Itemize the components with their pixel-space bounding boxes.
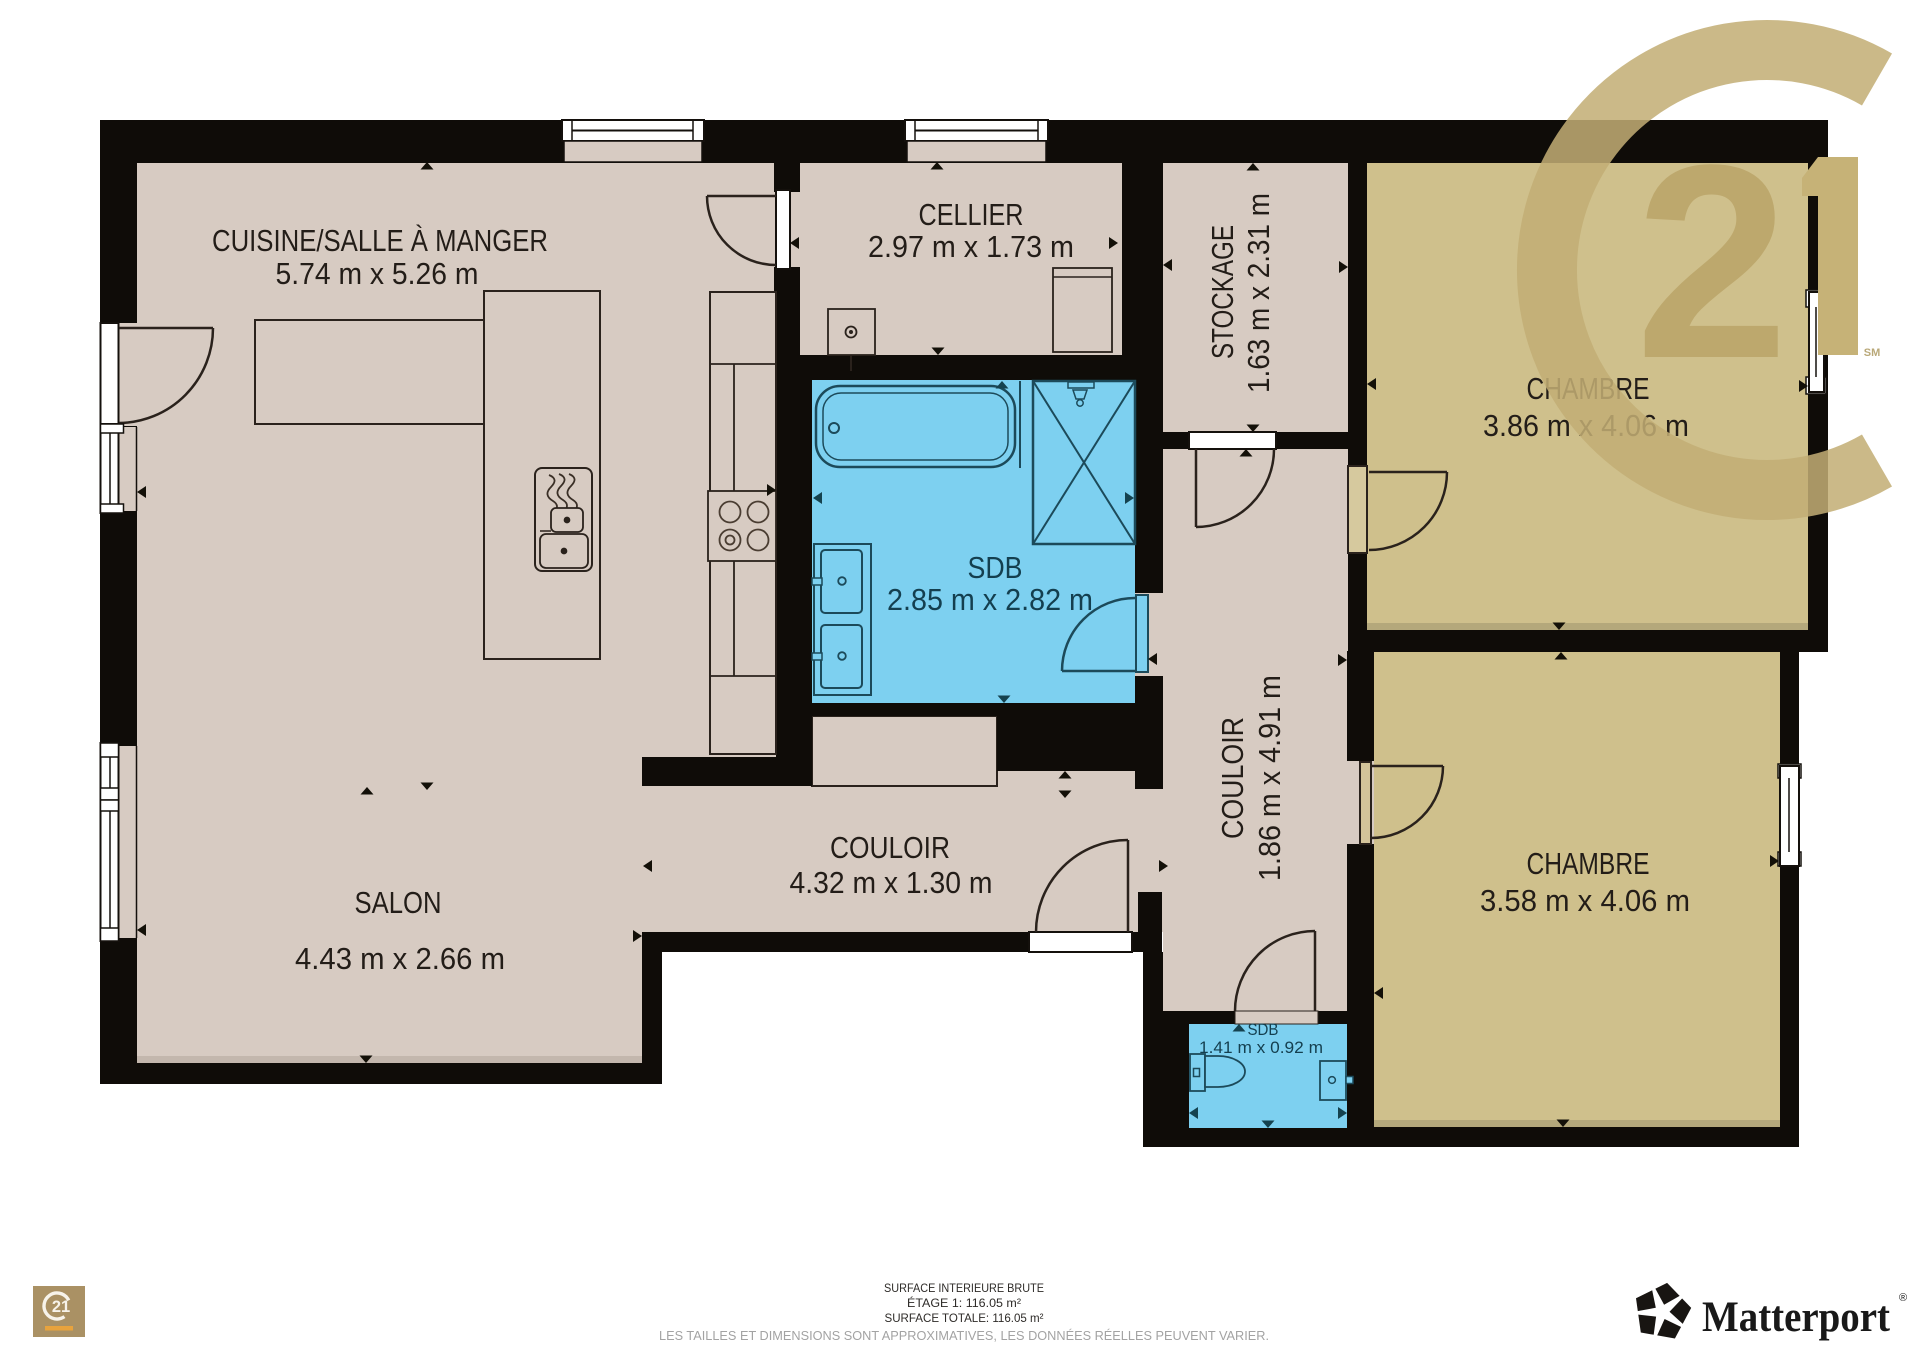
svg-text:SDB: SDB <box>1248 1020 1279 1039</box>
svg-text:STOCKAGE: STOCKAGE <box>1205 225 1240 359</box>
svg-text:ÉTAGE 1: 116.05 m²: ÉTAGE 1: 116.05 m² <box>907 1295 1021 1310</box>
svg-text:SURFACE INTERIEURE BRUTE: SURFACE INTERIEURE BRUTE <box>884 1281 1044 1295</box>
svg-text:®: ® <box>1899 1292 1907 1304</box>
svg-text:COULOIR: COULOIR <box>830 830 950 865</box>
svg-text:4.43 m x 2.66 m: 4.43 m x 2.66 m <box>295 941 505 976</box>
svg-text:CUISINE/SALLE À MANGER: CUISINE/SALLE À MANGER <box>212 223 548 258</box>
svg-text:4.32 m x 1.30 m: 4.32 m x 1.30 m <box>790 865 993 900</box>
svg-text:3.58 m x 4.06 m: 3.58 m x 4.06 m <box>1480 883 1690 918</box>
svg-text:1.86 m x 4.91 m: 1.86 m x 4.91 m <box>1252 675 1287 881</box>
svg-text:LES TAILLES ET DIMENSIONS SONT: LES TAILLES ET DIMENSIONS SONT APPROXIMA… <box>659 1328 1269 1343</box>
svg-text:SM: SM <box>1864 347 1881 359</box>
svg-text:CHAMBRE: CHAMBRE <box>1527 846 1650 881</box>
svg-text:2.85 m x 2.82 m: 2.85 m x 2.82 m <box>887 582 1093 617</box>
svg-text:Matterport: Matterport <box>1702 1294 1891 1341</box>
svg-text:21: 21 <box>52 1298 70 1316</box>
svg-text:SURFACE TOTALE: 116.05 m²: SURFACE TOTALE: 116.05 m² <box>885 1311 1044 1325</box>
svg-text:SALON: SALON <box>355 885 442 920</box>
svg-text:SDB: SDB <box>968 550 1023 585</box>
svg-text:COULOIR: COULOIR <box>1215 717 1250 839</box>
svg-text:CELLIER: CELLIER <box>919 197 1024 232</box>
svg-text:1.41 m x 0.92 m: 1.41 m x 0.92 m <box>1199 1039 1323 1057</box>
svg-text:1.63 m x 2.31 m: 1.63 m x 2.31 m <box>1241 193 1276 393</box>
svg-text:2: 2 <box>1635 108 1789 416</box>
svg-text:2.97 m x 1.73 m: 2.97 m x 1.73 m <box>868 229 1074 264</box>
svg-text:5.74 m x 5.26 m: 5.74 m x 5.26 m <box>276 256 479 291</box>
